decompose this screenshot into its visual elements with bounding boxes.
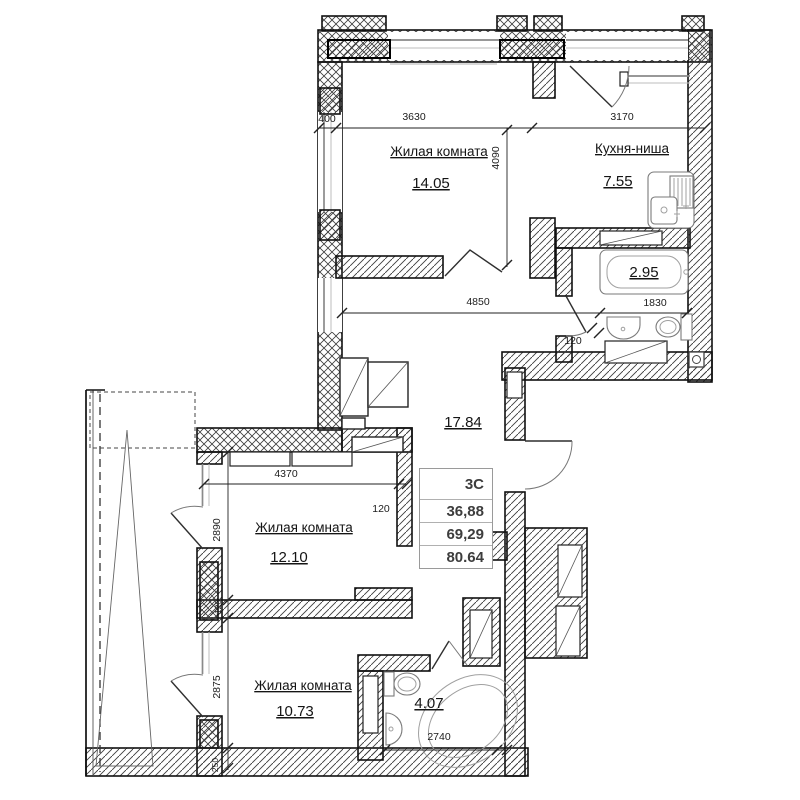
dim-1830: 1830	[643, 297, 667, 309]
room-living1-area: 14.05	[412, 175, 450, 192]
balcony-glazing	[86, 390, 209, 776]
washbasin2-icon	[386, 713, 402, 745]
dim-2890: 2890	[211, 518, 223, 542]
room-living1-name: Жилая комната	[390, 144, 488, 159]
living3-balcony-door-leaf	[171, 681, 203, 717]
dim-4090: 4090	[490, 146, 502, 170]
toilet2-icon	[384, 672, 420, 696]
floor-plan-drawing: 400 3630 3170 4090 Жилая комната 14.05 К…	[0, 0, 800, 800]
toilet-icon	[656, 314, 692, 340]
dim-2875: 2875	[211, 675, 223, 699]
room-bath1-area: 2.95	[629, 264, 658, 281]
room-living2-name: Жилая комната	[255, 520, 353, 535]
room-kitchen-area: 7.55	[603, 173, 632, 190]
dim-120-room2: 120	[372, 503, 390, 515]
dim-400: 400	[318, 113, 336, 125]
floor-drain-icon	[689, 352, 704, 367]
living1-folding-door	[445, 250, 502, 276]
dim-250: 250	[210, 758, 220, 772]
dim-120-bath: 120	[564, 335, 582, 347]
dim-3630: 3630	[402, 111, 426, 123]
washbasin-icon	[607, 317, 640, 339]
kitchen-sink-stove-icon	[648, 172, 694, 228]
apartment-type: 3С	[420, 469, 492, 499]
dim-2740: 2740	[427, 731, 451, 743]
room-living2-area: 12.10	[270, 549, 308, 566]
room-kitchen-name: Кухня-ниша	[595, 141, 669, 156]
apartment-info-table: 3С 36,88 69,29 80.64	[419, 468, 493, 569]
floor-plan-canvas: 400 3630 3170 4090 Жилая комната 14.05 К…	[0, 0, 800, 800]
room-hall-area: 17.84	[444, 414, 482, 431]
room-living3-area: 10.73	[276, 703, 314, 720]
total-area-with-summer-value: 80.64	[420, 545, 492, 568]
dim-4850: 4850	[466, 296, 490, 308]
glazing-opening-triangle	[96, 430, 153, 766]
kitchen-loggia-door-leaf	[570, 66, 612, 107]
dim-120-wall: 120	[213, 600, 223, 614]
room-bath2-area: 4.07	[414, 695, 443, 712]
total-area-value: 69,29	[420, 522, 492, 545]
bath2-door-leaf	[432, 641, 449, 669]
dim-4370: 4370	[274, 468, 298, 480]
living-area-value: 36,88	[420, 499, 492, 522]
room-living3-name: Жилая комната	[254, 678, 352, 693]
living2-balcony-door-leaf	[171, 513, 203, 549]
bath1-door-leaf	[566, 296, 586, 332]
dim-3170: 3170	[610, 111, 634, 123]
